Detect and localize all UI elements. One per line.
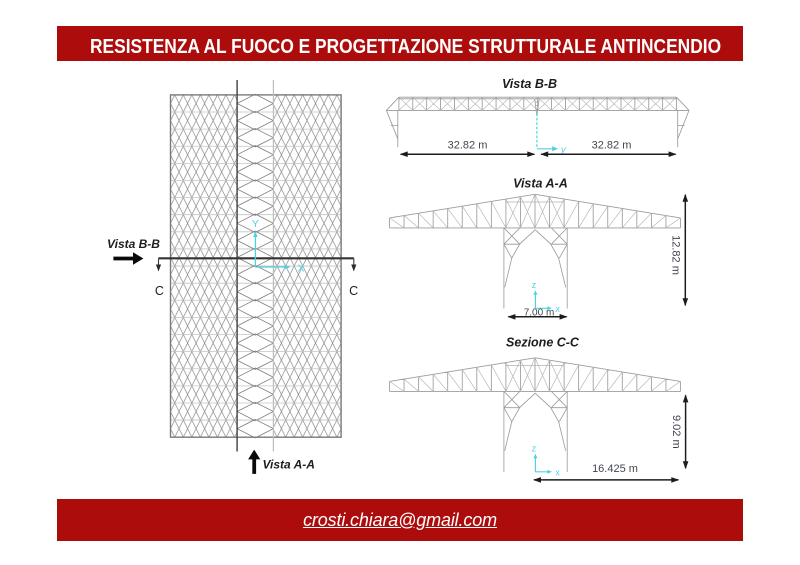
svg-text:z: z (532, 443, 537, 453)
svg-text:z: z (532, 280, 537, 290)
svg-text:X: X (297, 263, 304, 275)
svg-text:C: C (155, 284, 164, 298)
svg-text:x: x (555, 304, 560, 314)
svg-text:12.82 m: 12.82 m (670, 235, 682, 275)
svg-text:7.00 m: 7.00 m (524, 308, 555, 319)
svg-text:32.82 m: 32.82 m (448, 139, 488, 151)
svg-text:Vista B-B: Vista B-B (107, 237, 160, 251)
svg-text:Sezione C-C: Sezione C-C (506, 336, 580, 350)
svg-text:Vista B-B: Vista B-B (502, 77, 557, 91)
svg-text:x: x (555, 467, 560, 477)
svg-text:C: C (349, 284, 358, 298)
svg-text:9.02 m: 9.02 m (670, 415, 682, 449)
svg-text:16.425 m: 16.425 m (592, 463, 638, 475)
svg-text:Vista A-A: Vista A-A (262, 458, 314, 472)
svg-text:32.82 m: 32.82 m (592, 139, 632, 151)
svg-text:Vista A-A: Vista A-A (513, 177, 568, 191)
svg-text:Y: Y (252, 218, 259, 230)
